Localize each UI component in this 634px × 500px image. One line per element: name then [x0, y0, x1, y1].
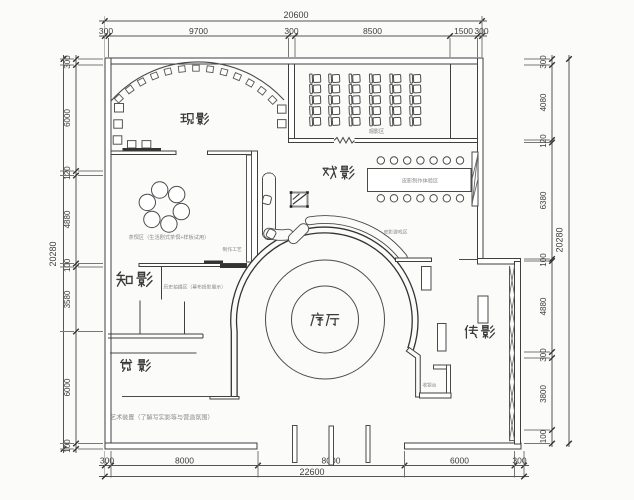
- svg-text:120: 120: [539, 134, 548, 148]
- svg-text:6000: 6000: [63, 109, 72, 127]
- svg-text:100: 100: [63, 258, 72, 272]
- svg-text:300: 300: [284, 26, 298, 36]
- svg-text:100: 100: [539, 253, 548, 267]
- svg-text:3800: 3800: [539, 385, 548, 403]
- svg-text:皮影制作体验区: 皮影制作体验区: [402, 177, 438, 185]
- svg-text:20280: 20280: [555, 227, 565, 252]
- svg-text:300: 300: [539, 55, 548, 69]
- svg-text:9700: 9700: [189, 26, 208, 36]
- svg-text:4880: 4880: [63, 210, 72, 228]
- svg-text:制作工艺: 制作工艺: [223, 246, 242, 253]
- svg-text:8500: 8500: [363, 26, 382, 36]
- svg-text:4080: 4080: [539, 93, 548, 111]
- svg-text:20600: 20600: [283, 10, 308, 20]
- svg-text:4880: 4880: [539, 297, 548, 315]
- svg-text:22600: 22600: [299, 467, 324, 477]
- svg-text:艺术装置（了解写实影等与营造氛围）: 艺术装置（了解写实影等与营造氛围）: [110, 414, 214, 422]
- svg-text:120: 120: [63, 166, 72, 180]
- svg-text:历史拍摄区（幕布投影展示）: 历史拍摄区（幕布投影展示）: [164, 284, 226, 291]
- svg-text:皮影游戏区: 皮影游戏区: [384, 229, 408, 236]
- svg-text:300: 300: [99, 26, 113, 36]
- svg-text:300: 300: [539, 348, 548, 362]
- svg-text:3580: 3580: [63, 290, 72, 308]
- svg-text:1500: 1500: [454, 26, 473, 36]
- svg-text:300: 300: [512, 455, 526, 465]
- svg-text:收银台: 收银台: [423, 382, 437, 389]
- svg-text:观影区: 观影区: [369, 127, 385, 135]
- svg-text:300: 300: [474, 26, 488, 36]
- svg-text:茶慏区（生活剧式茶慏+样板试用）: 茶慏区（生活剧式茶慏+样板试用）: [129, 233, 210, 241]
- svg-text:100: 100: [539, 429, 548, 443]
- svg-text:6380: 6380: [539, 191, 548, 209]
- svg-text:300: 300: [63, 55, 72, 69]
- svg-text:300: 300: [100, 455, 114, 465]
- svg-text:6000: 6000: [450, 455, 469, 465]
- svg-text:100: 100: [63, 439, 72, 453]
- svg-text:20280: 20280: [48, 241, 58, 266]
- svg-text:8000: 8000: [175, 455, 194, 465]
- svg-text:6000: 6000: [63, 378, 72, 396]
